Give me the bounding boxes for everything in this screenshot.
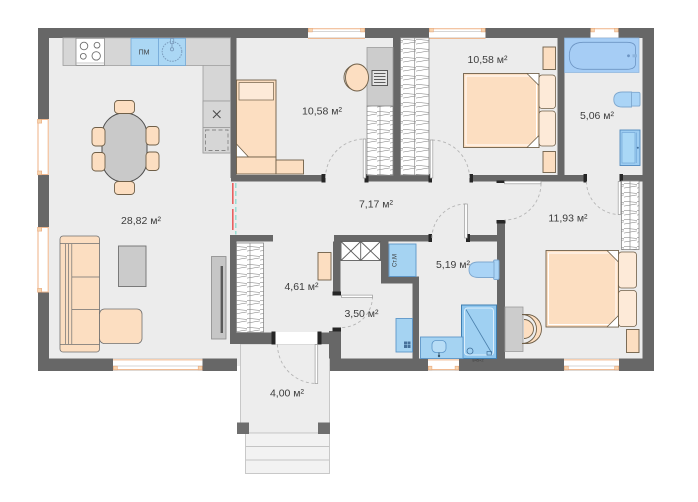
- svg-text:5,19 м²: 5,19 м²: [436, 259, 471, 271]
- svg-text:ПМ: ПМ: [139, 50, 150, 57]
- svg-text:4,61 м²: 4,61 м²: [284, 281, 319, 293]
- svg-text:28,82 м²: 28,82 м²: [121, 215, 161, 227]
- svg-text:7,17 м²: 7,17 м²: [359, 199, 394, 211]
- svg-text:10,58 м²: 10,58 м²: [302, 106, 342, 118]
- svg-text:Ст.М: Ст.М: [393, 254, 399, 267]
- svg-text:5,06 м²: 5,06 м²: [580, 110, 615, 122]
- svg-text:3,50 м²: 3,50 м²: [344, 308, 379, 320]
- svg-text:845×2: 845×2: [472, 358, 484, 363]
- svg-text:4,00 м²: 4,00 м²: [270, 388, 305, 400]
- svg-text:10,58 м²: 10,58 м²: [468, 54, 508, 66]
- svg-text:11,93 м²: 11,93 м²: [548, 213, 588, 225]
